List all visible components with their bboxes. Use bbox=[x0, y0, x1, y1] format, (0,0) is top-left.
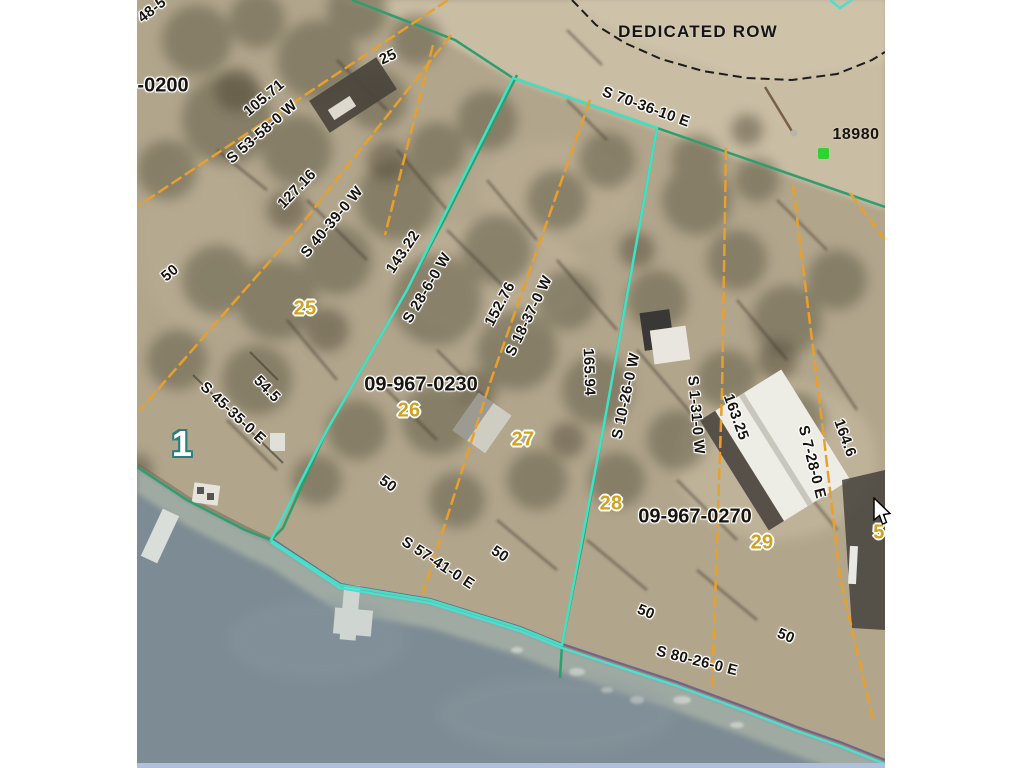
map-label: S 70-36-10 E bbox=[600, 83, 692, 130]
map-label: S 80-26-0 E bbox=[655, 643, 740, 680]
map-label: 29 bbox=[751, 532, 774, 555]
map-bottom-edge bbox=[137, 763, 885, 768]
map-canvas[interactable]: 48-5-0200105.71S 53-58-0 W25127.16S 40-3… bbox=[137, 0, 885, 768]
map-label: 164.6 bbox=[830, 417, 859, 460]
green-square-marker bbox=[818, 148, 829, 159]
map-label: 1 bbox=[172, 423, 192, 465]
map-label: 152.76 bbox=[481, 279, 518, 329]
map-label: 28 bbox=[600, 493, 623, 516]
map-label: 143.22 bbox=[383, 227, 424, 276]
map-label: 26 bbox=[398, 400, 421, 423]
map-label: -0200 bbox=[137, 75, 188, 98]
map-label: S 28-6-0 W bbox=[399, 250, 454, 326]
map-label: S 7-28-0 E bbox=[795, 424, 830, 501]
map-label: 09-967-0230 bbox=[364, 374, 477, 397]
map-label: 50 bbox=[635, 601, 657, 623]
map-label: DEDICATED ROW bbox=[618, 22, 778, 42]
map-label: S 40-39-0 W bbox=[297, 183, 366, 261]
map-label: 18980 bbox=[833, 126, 880, 144]
map-label: S 1-31-0 W bbox=[684, 375, 708, 455]
map-label: S 10-26-0 W bbox=[609, 351, 644, 440]
map-label: S 57-41-0 E bbox=[398, 533, 477, 593]
map-label: 50 bbox=[775, 625, 797, 647]
map-label: 50 bbox=[158, 261, 182, 285]
map-label: 127.16 bbox=[274, 166, 319, 212]
map-label: 09-967-0270 bbox=[638, 506, 751, 529]
map-label: 54.5 bbox=[250, 372, 284, 406]
screenshot-page: { "page": { "background": "#ffffff" }, "… bbox=[0, 0, 1024, 768]
map-label: 165.94 bbox=[580, 348, 599, 396]
map-label: 25 bbox=[294, 298, 317, 321]
map-label: 25 bbox=[377, 46, 400, 69]
map-label: 50 bbox=[488, 542, 512, 566]
map-label: 27 bbox=[512, 429, 535, 452]
map-labels-layer: 48-5-0200105.71S 53-58-0 W25127.16S 40-3… bbox=[137, 0, 885, 768]
map-label: 163.25 bbox=[720, 392, 752, 443]
map-label: 50 bbox=[376, 472, 400, 496]
mouse-cursor-icon bbox=[873, 497, 893, 527]
map-label: 48-5 bbox=[137, 0, 170, 26]
